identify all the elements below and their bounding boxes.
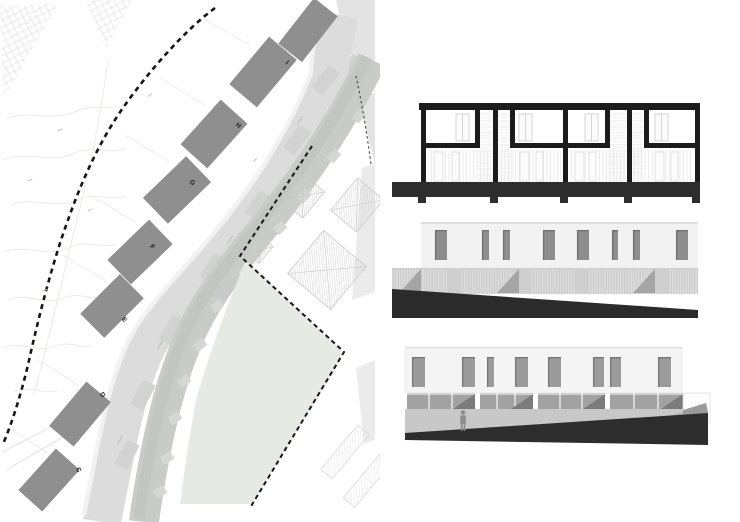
garden-elevation-drawing — [400, 344, 716, 448]
block-F: F — [107, 220, 172, 285]
roof-edge-line — [421, 222, 698, 224]
window — [462, 357, 475, 387]
window — [435, 230, 447, 260]
ground-slab — [392, 182, 700, 203]
slat-fence-band — [392, 268, 698, 294]
window — [610, 357, 621, 387]
window — [593, 357, 604, 387]
window — [548, 357, 561, 387]
window — [515, 357, 528, 387]
window — [676, 230, 688, 260]
window — [543, 230, 555, 260]
street-elevation-drawing — [390, 218, 710, 322]
roof-slab — [419, 103, 700, 110]
window — [577, 230, 589, 260]
window — [412, 357, 425, 387]
facade — [405, 347, 682, 393]
window — [658, 357, 671, 387]
building-section-drawing — [390, 95, 710, 207]
block-H: H — [181, 100, 248, 169]
glazing-band — [407, 393, 683, 409]
block-G: G — [143, 156, 211, 224]
roof-edge-line — [405, 347, 682, 349]
site-plan: C D E F G H I — [0, 0, 380, 522]
topo-hatch-areas — [0, 0, 132, 98]
floor-slabs — [426, 143, 695, 148]
block-C: C — [18, 448, 82, 511]
architectural-sheet: C D E F G H I — [0, 0, 740, 522]
facade — [421, 222, 698, 268]
